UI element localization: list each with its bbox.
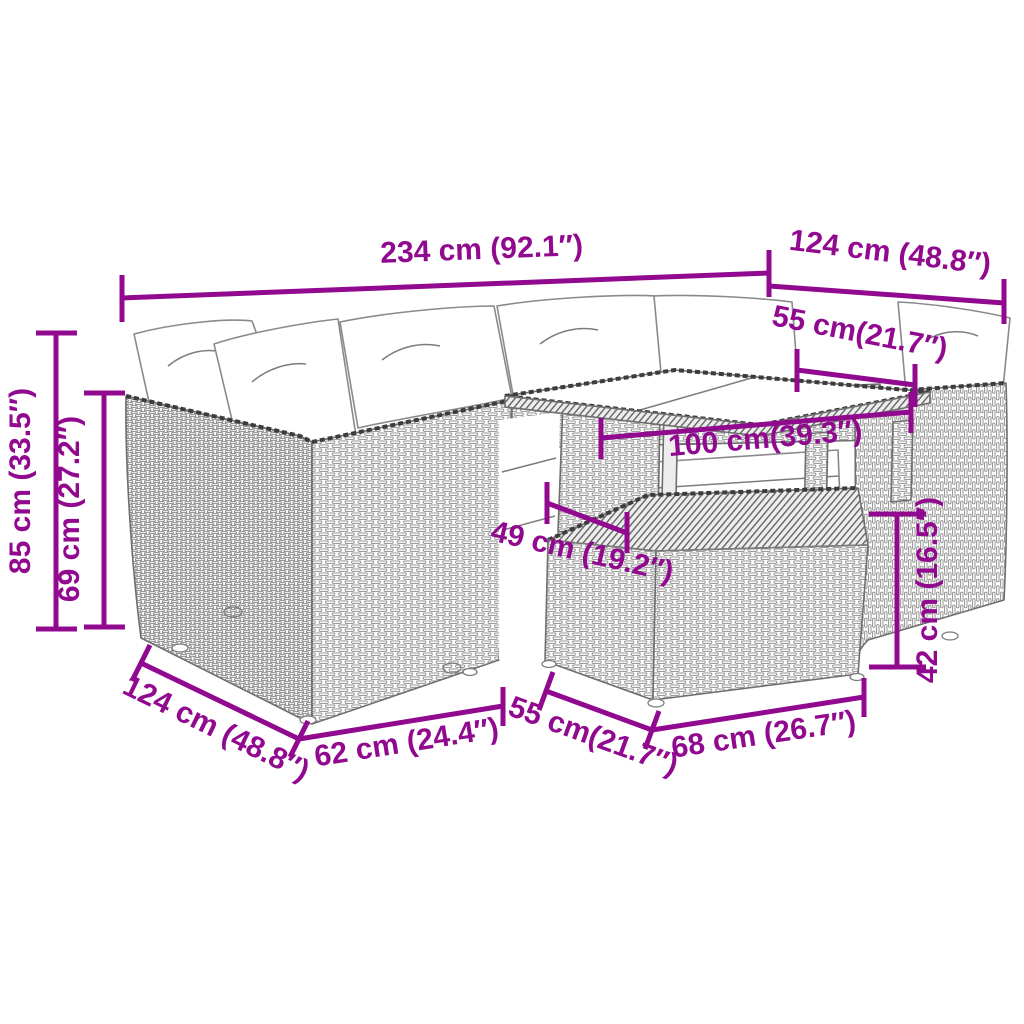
ottoman-right-face bbox=[653, 545, 868, 700]
dim-back-height: 69 cm (27.2″) bbox=[53, 393, 125, 627]
left-module-side-panel bbox=[312, 400, 512, 724]
diagram-canvas: 234 cm (92.1″) 124 cm (48.8″) 55 cm(21.7… bbox=[0, 0, 1024, 1024]
dimension-diagram: 234 cm (92.1″) 124 cm (48.8″) 55 cm(21.7… bbox=[0, 0, 1024, 1024]
left-module-foot-3 bbox=[463, 669, 477, 676]
dim-ottoman-height-label: 42 cm (16.5″) bbox=[911, 497, 944, 683]
dim-back-height-label: 69 cm (27.2″) bbox=[53, 416, 86, 602]
ottoman-foot-2 bbox=[648, 699, 664, 707]
dim-back-height-line bbox=[84, 393, 125, 627]
dim-total-height-label: 85 cm (33.5″) bbox=[4, 388, 37, 574]
left-module-front-panel bbox=[126, 396, 312, 724]
ottoman-foot-1 bbox=[542, 661, 556, 668]
dim-right-depth-label: 124 cm (48.8″) bbox=[787, 224, 992, 281]
dim-total-width-label: 234 cm (92.1″) bbox=[380, 229, 584, 270]
left-module-foot-1 bbox=[172, 644, 188, 652]
right-module-foot bbox=[942, 632, 958, 640]
sofa-left-module bbox=[126, 396, 512, 724]
